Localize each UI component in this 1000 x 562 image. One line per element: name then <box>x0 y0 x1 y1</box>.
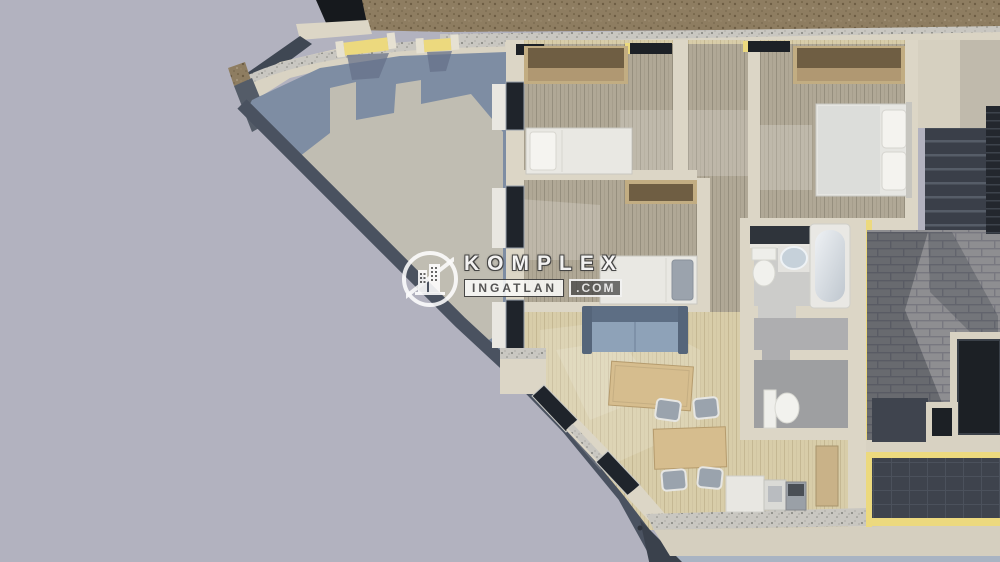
survey-dot <box>638 526 643 531</box>
exterior-wall-brown <box>356 0 1000 32</box>
watermark: KOMPLEX INGATLAN .COM <box>402 250 622 316</box>
brand-wordmark: KOMPLEX <box>464 252 624 276</box>
bathtub <box>810 224 850 308</box>
buildings-badge-icon <box>402 251 458 307</box>
single-bed-1 <box>526 128 632 174</box>
dark-roof-upper <box>872 398 928 442</box>
insulation-roof-bottom <box>866 518 1000 526</box>
insulation-roof-left <box>866 452 872 527</box>
privacy-screen <box>986 106 1000 234</box>
wardrobe-bedroom2 <box>625 180 697 204</box>
kitchen-tall-cabinet <box>816 446 838 506</box>
bathroom-vanity <box>750 226 810 248</box>
floorplan-render: KOMPLEX INGATLAN .COM <box>0 0 1000 562</box>
brand-sub-label: INGATLAN <box>464 279 564 297</box>
insulation-roof-top <box>866 452 1000 458</box>
double-bed <box>816 102 912 198</box>
dining-table <box>653 427 726 469</box>
wardrobe-bedroom1 <box>524 46 628 84</box>
washbasin <box>778 246 810 272</box>
brand-tld-label: .COM <box>569 279 622 297</box>
parapet-cap <box>296 20 372 40</box>
dark-roof-main <box>872 458 1000 520</box>
wardrobe-bedroom3 <box>793 46 905 84</box>
toilet-bathroom <box>752 248 776 286</box>
skylight-small <box>926 402 958 442</box>
